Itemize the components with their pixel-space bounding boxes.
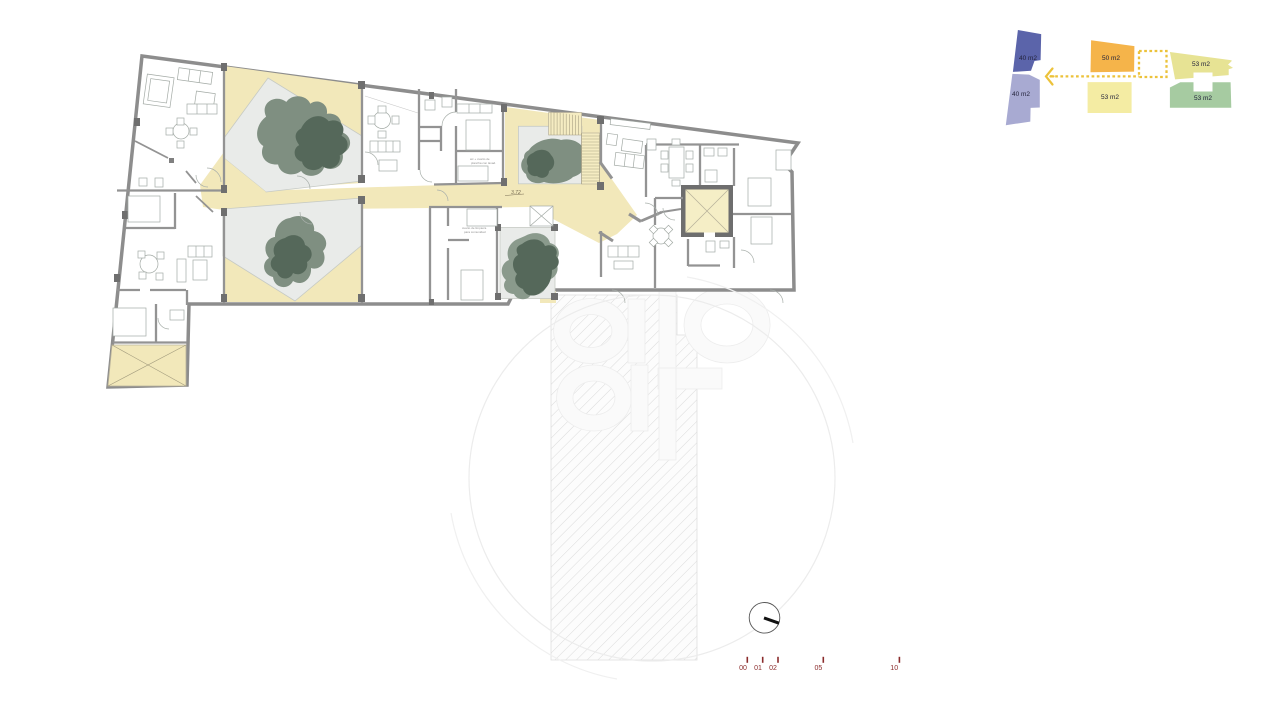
svg-text:02: 02: [769, 665, 777, 672]
svg-text:40 m2: 40 m2: [1019, 55, 1037, 62]
svg-text:50 m2: 50 m2: [1102, 55, 1120, 62]
svg-text:05: 05: [815, 665, 823, 672]
svg-text:01: 01: [754, 665, 762, 672]
svg-text:53 m2: 53 m2: [1101, 94, 1119, 101]
svg-text:53 m2: 53 m2: [1194, 95, 1212, 102]
svg-text:40 m2: 40 m2: [1012, 91, 1030, 98]
svg-text:53 m2: 53 m2: [1192, 61, 1210, 68]
svg-text:10: 10: [890, 665, 898, 672]
svg-text:plancha con lavad.: plancha con lavad.: [471, 161, 496, 165]
svg-text:00: 00: [739, 665, 747, 672]
svg-text:para comunidad: para comunidad: [464, 230, 486, 234]
